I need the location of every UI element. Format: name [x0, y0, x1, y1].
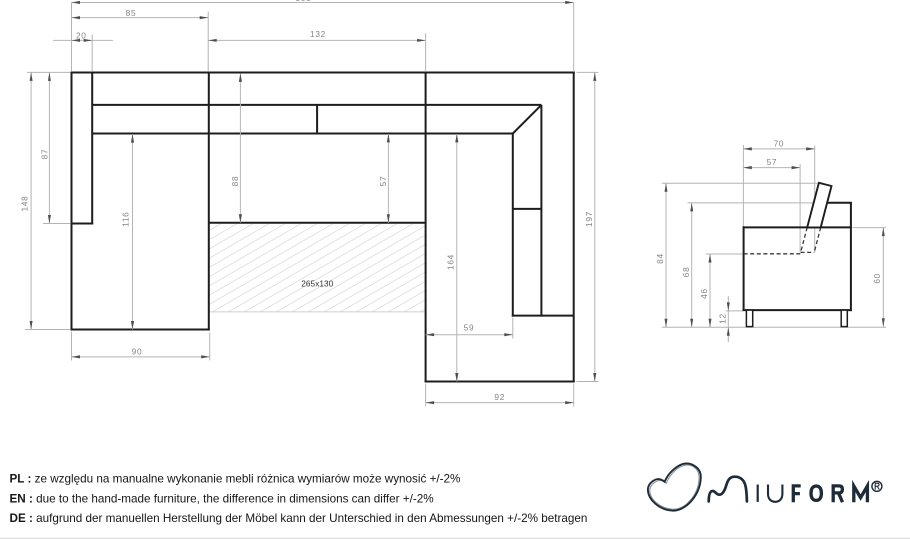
- svg-text:84: 84: [655, 253, 665, 264]
- svg-text:92: 92: [494, 392, 505, 402]
- svg-text:DE : aufgrund der manuellen He: DE : aufgrund der manuellen Herstellung …: [10, 512, 588, 525]
- svg-text:70: 70: [774, 139, 785, 149]
- svg-text:305: 305: [296, 0, 312, 3]
- svg-text:116: 116: [120, 212, 130, 227]
- svg-text:197: 197: [584, 211, 594, 227]
- svg-text:88: 88: [230, 176, 240, 187]
- svg-text:EN : due to the hand-made furn: EN : due to the hand-made furniture, the…: [10, 492, 434, 505]
- svg-text:85: 85: [126, 8, 137, 18]
- svg-text:46: 46: [699, 288, 709, 299]
- svg-text:57: 57: [378, 176, 388, 187]
- svg-text:132: 132: [310, 29, 326, 39]
- svg-text:12: 12: [717, 313, 727, 324]
- svg-text:90: 90: [132, 346, 143, 356]
- svg-text:57: 57: [767, 157, 778, 167]
- svg-text:59: 59: [464, 323, 475, 333]
- svg-text:20: 20: [76, 31, 87, 41]
- svg-text:60: 60: [872, 273, 882, 284]
- svg-text:148: 148: [20, 196, 30, 212]
- svg-text:164: 164: [445, 254, 455, 270]
- svg-text:PL : ze względu na manualne wy: PL : ze względu na manualne wykonanie me…: [10, 472, 461, 485]
- svg-text:68: 68: [681, 267, 691, 278]
- svg-text:265x130: 265x130: [301, 279, 333, 288]
- svg-text:87: 87: [39, 149, 49, 160]
